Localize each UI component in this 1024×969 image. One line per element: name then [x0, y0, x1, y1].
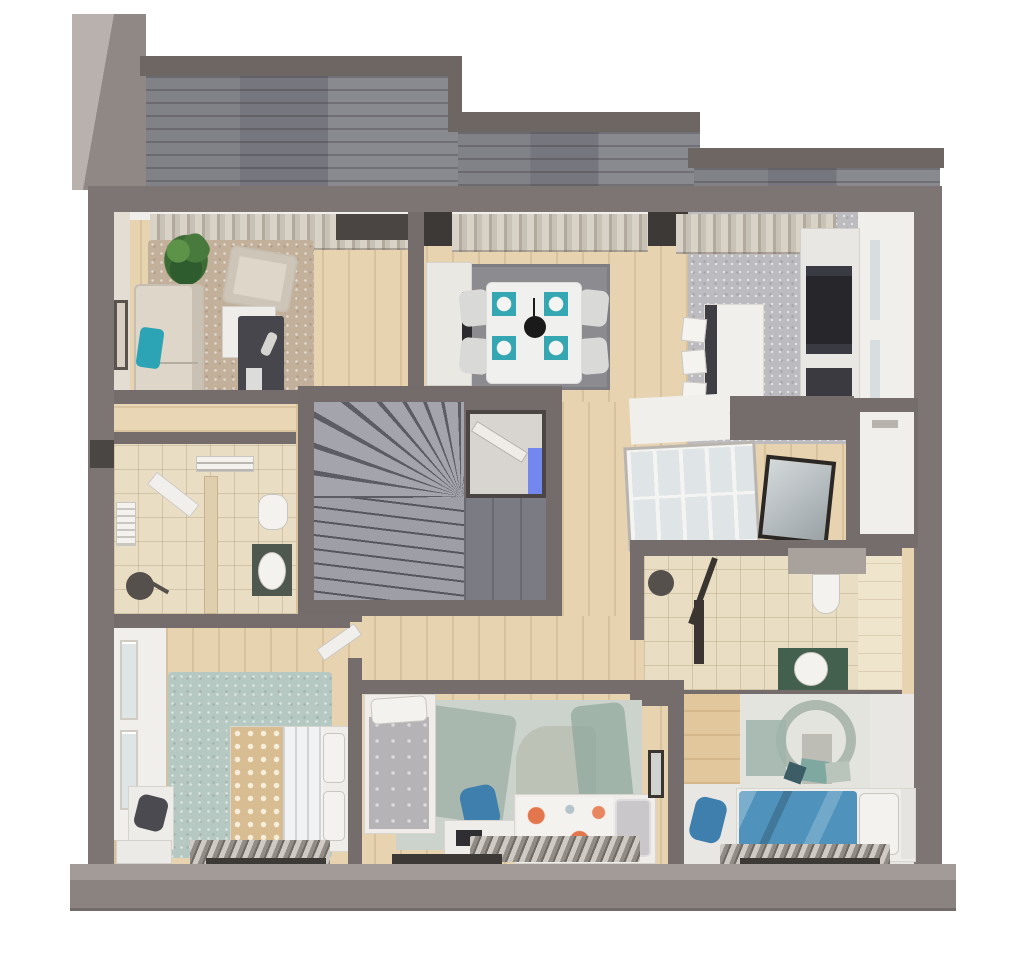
- master-kids-partition: [348, 658, 362, 868]
- mural-shape: [746, 720, 786, 776]
- shower-room-north-wall: [114, 432, 296, 444]
- front-window-recess: [392, 854, 502, 864]
- wall-vent: [872, 420, 898, 428]
- front-wall-top-face: [70, 864, 956, 880]
- master-north-wall: [114, 614, 350, 628]
- over-toilet-shelf: [788, 548, 866, 574]
- corridor-wall: [730, 396, 854, 440]
- glazed-partition: [623, 441, 760, 552]
- pillow: [323, 733, 345, 783]
- roof-terrace: [0, 0, 1024, 210]
- window-recess-left: [424, 212, 452, 246]
- single-bed: [364, 694, 436, 834]
- shower-room: [114, 444, 296, 614]
- pillow: [323, 791, 345, 841]
- second-bathroom: [644, 556, 902, 690]
- rain-shower-head: [126, 572, 154, 600]
- french-window: [120, 640, 138, 720]
- shower-divider: [204, 476, 218, 614]
- parapet-tower: [72, 14, 146, 190]
- roof-deck-mid: [458, 132, 700, 190]
- dining-curtains: [452, 214, 648, 252]
- pillow: [370, 695, 428, 725]
- south-corridor: [348, 616, 630, 688]
- bar-stool: [681, 317, 707, 343]
- wall-radiator: [116, 502, 136, 546]
- white-duvet: [283, 727, 323, 849]
- round-basin: [794, 652, 828, 686]
- double-bed: [230, 726, 352, 852]
- potted-plant: [160, 230, 212, 290]
- rain-shower-head: [648, 570, 674, 596]
- east-window-glass: [870, 240, 880, 320]
- floor-plan-render: [0, 0, 1024, 969]
- headboard: [901, 789, 915, 859]
- building-top-wall: [88, 186, 940, 212]
- roof-deck-upper: [146, 76, 460, 190]
- leaning-mirror: [758, 455, 836, 546]
- wall-niche: [90, 440, 114, 468]
- built-in-oven-column: [806, 266, 852, 354]
- place-setting: [492, 336, 516, 360]
- drawer-unit: [116, 840, 172, 864]
- grey-blanket: [369, 717, 429, 829]
- pendant-lamp: [524, 316, 546, 338]
- upper-hallway: [114, 404, 296, 432]
- kids-bedroom: [362, 694, 668, 864]
- front-wall-face: [70, 880, 956, 911]
- door-frame: [694, 600, 704, 664]
- stair-landing: [464, 498, 546, 600]
- kids-north-wall: [362, 680, 668, 694]
- accent-cushion: [825, 761, 851, 783]
- roof-parapet-band: [140, 56, 460, 76]
- bar-stool: [681, 349, 707, 375]
- master-bedroom: [114, 628, 348, 864]
- framed-art: [114, 300, 128, 370]
- stair-lower-flight: [314, 498, 464, 600]
- building-right-wall: [914, 186, 942, 908]
- building-left-wall: [88, 186, 114, 908]
- storage-room: [860, 412, 914, 534]
- stair-hall: [298, 386, 562, 616]
- glazed-corridor: [626, 392, 858, 548]
- dining-area: [424, 212, 688, 402]
- roof-parapet-band-3: [688, 148, 944, 168]
- dotted-bedcover: [231, 727, 283, 849]
- dark-wardrobe-panel: [336, 214, 408, 240]
- third-bedroom: [684, 694, 914, 864]
- washbasin: [258, 552, 286, 590]
- armchair: [221, 245, 298, 314]
- place-setting: [492, 292, 516, 316]
- roof-parapet-band-2: [452, 112, 700, 132]
- door-glazed-sidelight: [528, 448, 542, 494]
- place-setting: [544, 292, 568, 316]
- kids-bed3-partition: [668, 680, 684, 868]
- shelf-band: [629, 393, 731, 444]
- bathroom2-west-wall: [630, 540, 644, 640]
- living-dining-partition: [408, 212, 424, 394]
- bathroom2-east-wall-face: [858, 556, 902, 690]
- wood-accent-strip: [684, 694, 740, 784]
- towel-rail: [196, 456, 254, 472]
- open-door-leaf: [147, 472, 199, 518]
- stair-side-hallway: [562, 402, 630, 616]
- toilet: [258, 494, 288, 530]
- framed-art: [648, 750, 664, 798]
- wall-hung-toilet: [812, 574, 840, 614]
- place-setting: [544, 336, 568, 360]
- master-kids-partition: [348, 614, 362, 622]
- stair-winder-flight: [314, 402, 464, 498]
